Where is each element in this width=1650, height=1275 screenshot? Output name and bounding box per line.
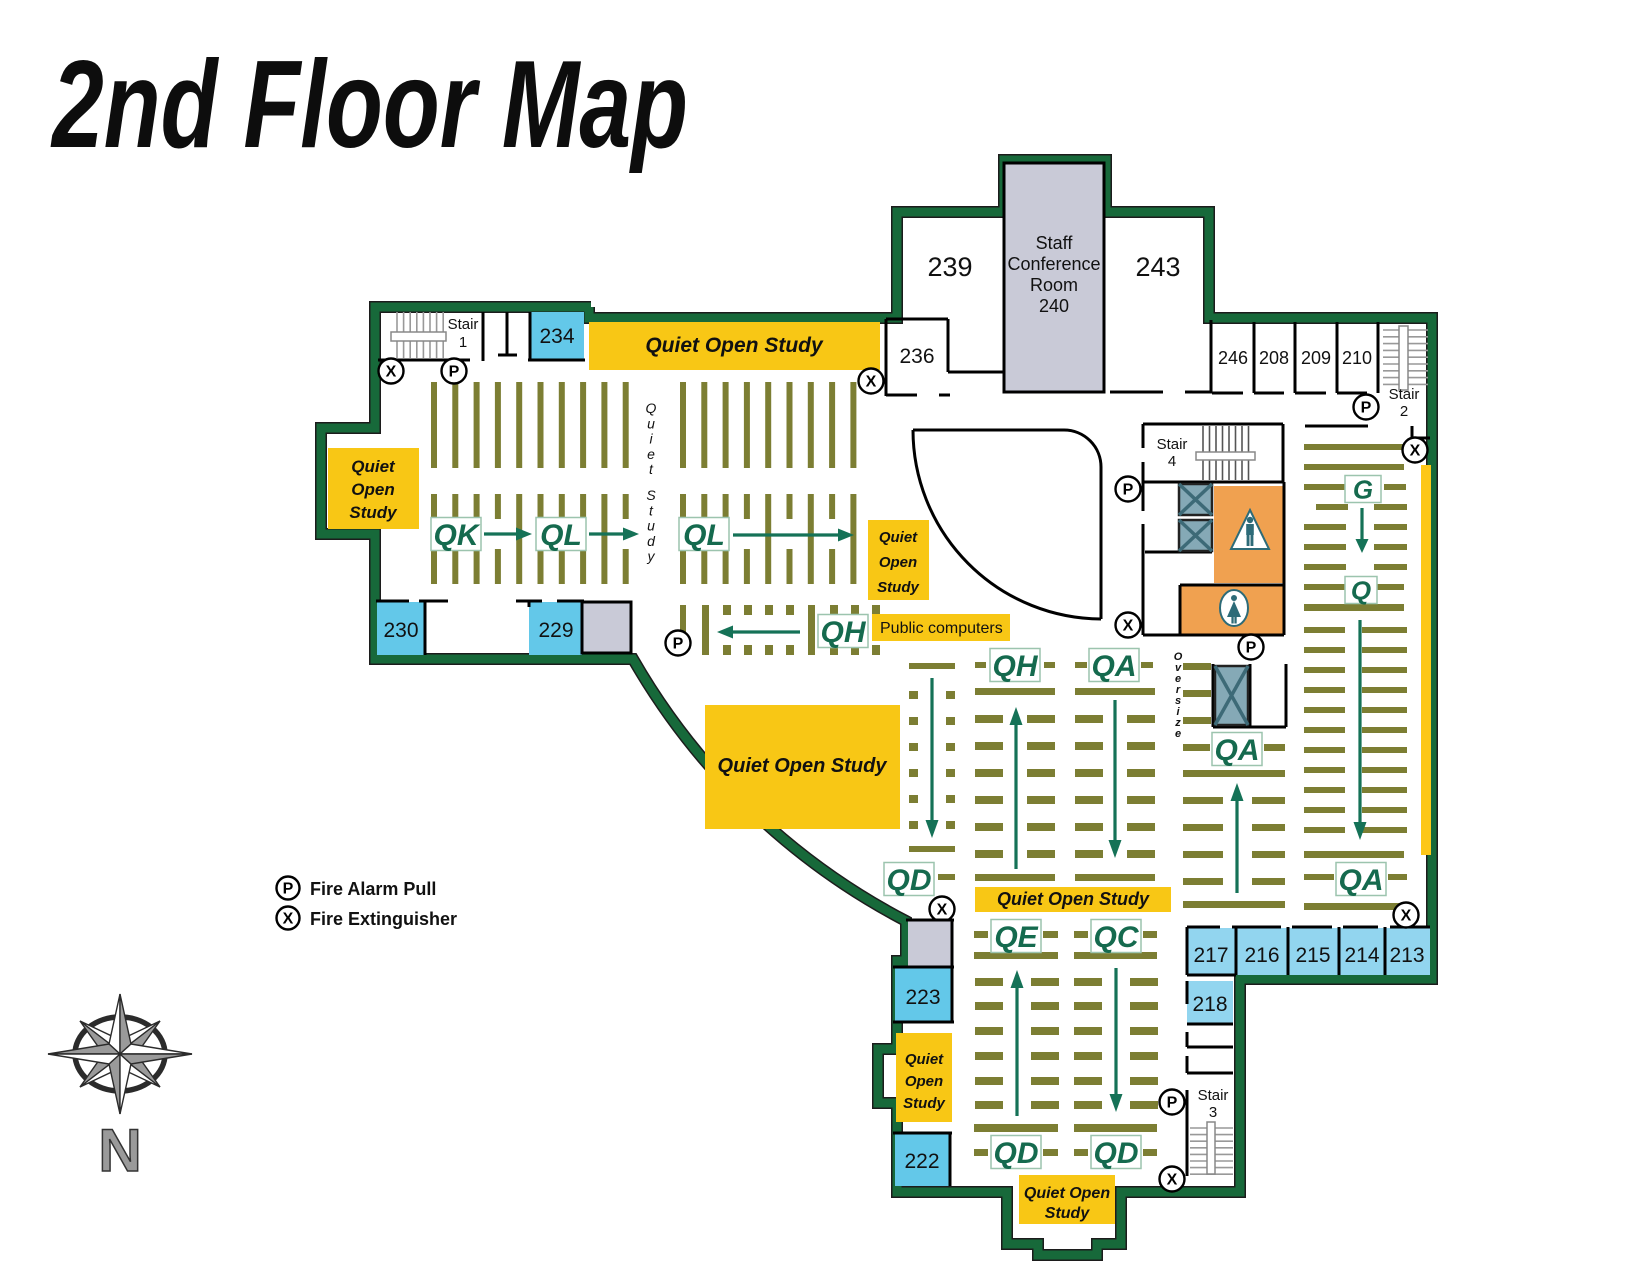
svg-text:Quiet: Quiet xyxy=(879,529,918,546)
svg-text:Staff: Staff xyxy=(1036,233,1074,253)
svg-text:Fire Alarm Pull: Fire Alarm Pull xyxy=(310,879,436,899)
svg-text:QD: QD xyxy=(1094,1137,1139,1170)
svg-text:214: 214 xyxy=(1344,944,1379,967)
svg-text:1: 1 xyxy=(459,334,467,351)
svg-text:S: S xyxy=(646,487,656,503)
svg-text:Open: Open xyxy=(351,480,394,499)
svg-text:X: X xyxy=(937,902,948,919)
svg-text:P: P xyxy=(449,364,460,381)
svg-text:246: 246 xyxy=(1218,348,1248,368)
svg-text:234: 234 xyxy=(539,325,574,348)
svg-text:217: 217 xyxy=(1193,944,1228,967)
svg-text:Study: Study xyxy=(1045,1205,1091,1222)
svg-text:P: P xyxy=(1123,482,1134,499)
svg-text:Quiet: Quiet xyxy=(905,1051,944,1068)
svg-text:e: e xyxy=(647,446,655,462)
svg-text:QD: QD xyxy=(994,1137,1039,1170)
svg-text:Study: Study xyxy=(903,1095,945,1112)
svg-text:P: P xyxy=(283,881,294,898)
svg-text:Stair: Stair xyxy=(1157,436,1188,453)
svg-text:239: 239 xyxy=(927,252,972,282)
svg-text:X: X xyxy=(1410,443,1421,460)
svg-text:229: 229 xyxy=(538,619,573,642)
svg-text:Room: Room xyxy=(1030,275,1078,295)
svg-text:230: 230 xyxy=(383,619,418,642)
svg-text:3: 3 xyxy=(1209,1104,1217,1121)
svg-text:Quiet: Quiet xyxy=(351,457,396,476)
svg-text:QL: QL xyxy=(540,519,582,552)
svg-text:Quiet Open Study: Quiet Open Study xyxy=(997,889,1150,909)
svg-text:QH: QH xyxy=(821,616,867,649)
svg-text:236: 236 xyxy=(899,345,934,368)
svg-text:P: P xyxy=(1361,400,1372,417)
svg-text:N: N xyxy=(98,1117,141,1184)
svg-text:P: P xyxy=(1167,1095,1178,1112)
svg-text:222: 222 xyxy=(904,1150,939,1173)
svg-text:QC: QC xyxy=(1094,921,1140,954)
svg-text:QD: QD xyxy=(887,864,932,897)
svg-text:Q: Q xyxy=(1351,575,1371,605)
svg-text:2nd Floor Map: 2nd Floor Map xyxy=(50,36,688,174)
svg-text:QE: QE xyxy=(994,921,1038,954)
svg-text:QA: QA xyxy=(1339,864,1384,897)
svg-text:Quiet Open Study: Quiet Open Study xyxy=(718,755,888,777)
svg-text:P: P xyxy=(1246,640,1257,657)
svg-text:P: P xyxy=(673,636,684,653)
svg-text:Public computers: Public computers xyxy=(880,620,1003,637)
svg-text:208: 208 xyxy=(1259,348,1289,368)
svg-text:Stair: Stair xyxy=(448,316,479,333)
svg-text:Open: Open xyxy=(879,554,917,571)
svg-text:X: X xyxy=(1167,1172,1178,1189)
svg-text:G: G xyxy=(1353,474,1373,504)
svg-text:Study: Study xyxy=(877,579,919,596)
svg-text:Stair: Stair xyxy=(1389,386,1420,403)
svg-text:240: 240 xyxy=(1039,296,1069,316)
svg-text:Fire Extinguisher: Fire Extinguisher xyxy=(310,909,457,929)
svg-text:Conference: Conference xyxy=(1007,254,1100,274)
svg-text:y: y xyxy=(647,548,656,564)
svg-text:Quiet Open: Quiet Open xyxy=(1024,1185,1110,1202)
svg-text:QK: QK xyxy=(434,519,481,552)
svg-text:209: 209 xyxy=(1301,348,1331,368)
svg-text:223: 223 xyxy=(905,986,940,1009)
svg-text:X: X xyxy=(866,374,877,391)
svg-text:u: u xyxy=(647,518,655,534)
svg-text:e: e xyxy=(1175,728,1181,740)
svg-text:Q: Q xyxy=(646,400,657,416)
svg-text:d: d xyxy=(647,533,656,549)
svg-text:2: 2 xyxy=(1400,403,1408,420)
svg-text:X: X xyxy=(1123,618,1134,635)
svg-text:218: 218 xyxy=(1192,993,1227,1016)
svg-text:QL: QL xyxy=(683,519,725,552)
svg-text:X: X xyxy=(283,911,294,928)
svg-text:Quiet Open Study: Quiet Open Study xyxy=(645,334,824,357)
svg-text:QH: QH xyxy=(993,650,1039,683)
svg-text:213: 213 xyxy=(1389,944,1424,967)
svg-text:u: u xyxy=(647,415,655,431)
svg-text:QA: QA xyxy=(1215,734,1260,767)
svg-text:216: 216 xyxy=(1244,944,1279,967)
svg-text:215: 215 xyxy=(1295,944,1330,967)
svg-text:X: X xyxy=(386,364,397,381)
svg-text:4: 4 xyxy=(1168,453,1176,470)
svg-text:QA: QA xyxy=(1092,650,1137,683)
svg-text:Stair: Stair xyxy=(1198,1087,1229,1104)
svg-text:X: X xyxy=(1401,908,1412,925)
svg-text:243: 243 xyxy=(1135,252,1180,282)
svg-text:Study: Study xyxy=(349,503,398,522)
svg-text:210: 210 xyxy=(1342,348,1372,368)
svg-text:Open: Open xyxy=(905,1073,943,1090)
